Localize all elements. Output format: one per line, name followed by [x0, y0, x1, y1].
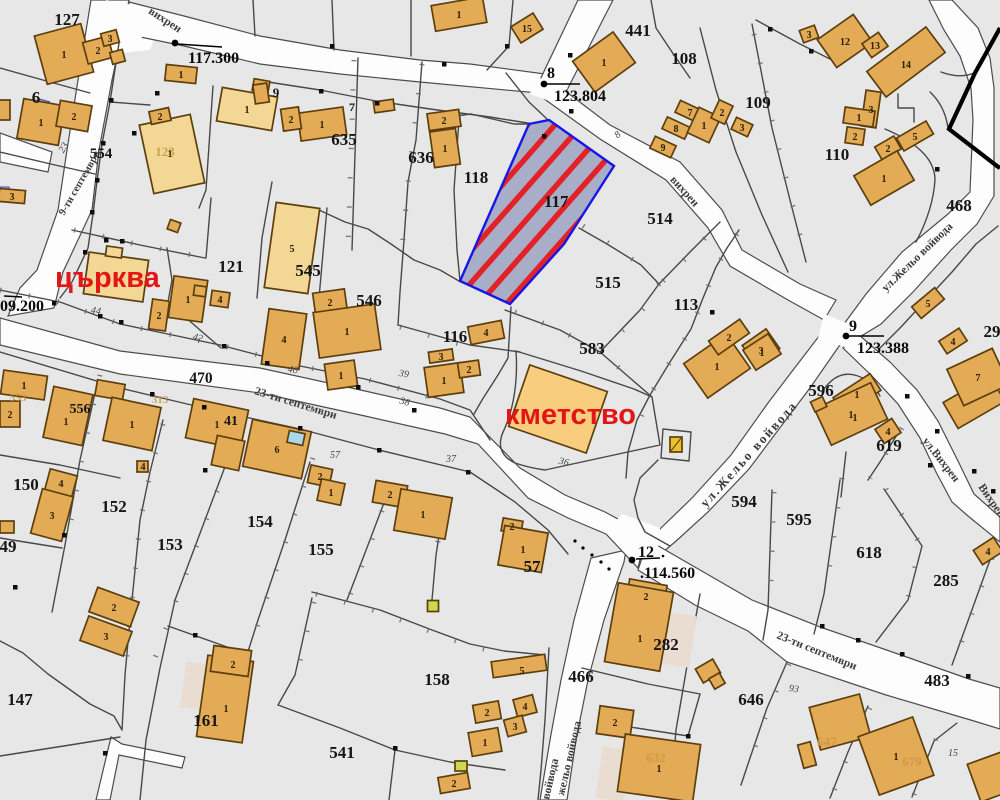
svg-text:5: 5	[926, 299, 931, 310]
svg-text:553: 553	[10, 392, 27, 404]
svg-text:1: 1	[22, 381, 27, 392]
svg-text:1: 1	[421, 510, 426, 521]
svg-text:636: 636	[408, 148, 434, 167]
svg-text:2: 2	[72, 112, 77, 123]
svg-text:1: 1	[894, 752, 899, 763]
svg-text:кметство: кметство	[505, 399, 636, 431]
svg-text:4: 4	[484, 328, 489, 339]
svg-text:154: 154	[247, 512, 273, 531]
svg-text:2: 2	[442, 116, 447, 127]
svg-text:1: 1	[715, 362, 720, 373]
svg-text:6: 6	[275, 445, 280, 456]
svg-text:595: 595	[786, 510, 812, 529]
svg-text:9: 9	[849, 318, 857, 335]
svg-text:1: 1	[443, 144, 448, 155]
svg-text:2: 2	[613, 718, 618, 729]
svg-text:1: 1	[179, 70, 184, 81]
svg-text:2: 2	[452, 779, 457, 790]
svg-text:3: 3	[513, 722, 518, 733]
svg-text:1: 1	[849, 410, 854, 421]
svg-text:441: 441	[625, 21, 651, 40]
svg-text:583: 583	[579, 339, 605, 358]
svg-text:1: 1	[882, 174, 887, 185]
svg-text:152: 152	[101, 497, 127, 516]
svg-text:5: 5	[520, 666, 525, 677]
svg-text:2: 2	[112, 603, 117, 614]
svg-text:9: 9	[273, 85, 280, 100]
svg-text:1: 1	[638, 634, 643, 645]
svg-text:3: 3	[439, 352, 444, 363]
svg-text:3: 3	[740, 123, 745, 134]
svg-text:57: 57	[524, 557, 542, 576]
svg-text:36: 36	[557, 456, 570, 469]
svg-text:93: 93	[788, 683, 800, 696]
svg-text:546: 546	[356, 291, 382, 310]
svg-text:4: 4	[218, 295, 223, 306]
svg-text:4: 4	[282, 335, 287, 346]
svg-text:123.804: 123.804	[554, 88, 606, 105]
svg-text:5: 5	[913, 132, 918, 143]
svg-text:7: 7	[349, 100, 355, 114]
svg-text:1: 1	[64, 417, 69, 428]
svg-text:1: 1	[442, 376, 447, 387]
svg-text:1: 1	[62, 50, 67, 61]
svg-text:121: 121	[218, 257, 244, 276]
svg-text:1: 1	[483, 738, 488, 749]
svg-text:3: 3	[869, 105, 874, 116]
svg-text:4: 4	[886, 427, 891, 438]
svg-text:468: 468	[946, 196, 972, 215]
svg-text:7: 7	[976, 373, 981, 384]
svg-text:8: 8	[547, 65, 555, 82]
svg-text:4: 4	[951, 337, 956, 348]
svg-text:483: 483	[924, 671, 950, 690]
svg-text:109: 109	[745, 93, 771, 112]
svg-text:3: 3	[807, 30, 812, 41]
svg-text:646: 646	[738, 690, 764, 709]
svg-text:2: 2	[886, 144, 891, 155]
svg-text:647: 647	[817, 734, 837, 749]
svg-text:9: 9	[661, 143, 666, 154]
svg-text:40: 40	[287, 364, 299, 377]
svg-text:1: 1	[339, 371, 344, 382]
svg-text:2: 2	[720, 108, 725, 119]
svg-text:150: 150	[13, 475, 39, 494]
svg-text:117.300: 117.300	[188, 50, 239, 67]
svg-text:2: 2	[485, 708, 490, 719]
svg-text:541: 541	[329, 743, 355, 762]
svg-text:123.388: 123.388	[857, 340, 909, 357]
svg-text:41: 41	[224, 414, 238, 429]
svg-text:49: 49	[0, 537, 17, 556]
svg-text:108: 108	[671, 49, 697, 68]
svg-text:619: 619	[876, 436, 902, 455]
svg-text:4: 4	[59, 479, 64, 490]
svg-text:515: 515	[595, 273, 621, 292]
svg-text:556: 556	[70, 402, 91, 417]
svg-text:2: 2	[727, 333, 732, 344]
svg-text:1: 1	[130, 420, 135, 431]
svg-text:.114.560: .114.560	[640, 565, 695, 582]
svg-text:113: 113	[674, 295, 699, 314]
svg-text:1: 1	[224, 704, 229, 715]
svg-text:29: 29	[984, 322, 1000, 341]
svg-text:1: 1	[320, 120, 325, 131]
svg-text:37: 37	[445, 454, 457, 465]
svg-text:161: 161	[193, 711, 219, 730]
svg-text:618: 618	[856, 543, 882, 562]
svg-text:6: 6	[32, 88, 41, 107]
svg-text:155: 155	[308, 540, 334, 559]
svg-text:2: 2	[467, 365, 472, 376]
svg-text:110: 110	[825, 145, 850, 164]
svg-text:3: 3	[104, 632, 109, 643]
svg-text:147: 147	[7, 690, 33, 709]
svg-text:2: 2	[96, 46, 101, 57]
svg-text:632: 632	[646, 750, 666, 765]
svg-text:2: 2	[328, 298, 333, 309]
svg-text:1: 1	[602, 58, 607, 69]
svg-text:09.200: 09.200	[0, 298, 44, 315]
svg-text:2: 2	[510, 522, 515, 533]
svg-text:635: 635	[331, 130, 357, 149]
svg-text:2: 2	[157, 311, 162, 322]
svg-text:158: 158	[424, 670, 450, 689]
svg-text:2: 2	[853, 132, 858, 143]
svg-text:3: 3	[108, 34, 113, 45]
svg-text:14: 14	[901, 60, 911, 71]
svg-text:596: 596	[808, 381, 834, 400]
svg-text:4: 4	[986, 547, 991, 558]
svg-text:5: 5	[290, 244, 295, 255]
svg-text:2: 2	[318, 472, 323, 483]
svg-text:църква: църква	[55, 262, 161, 294]
svg-text:1: 1	[329, 488, 334, 499]
svg-text:13: 13	[870, 41, 880, 52]
svg-text:2: 2	[644, 592, 649, 603]
svg-text:8: 8	[674, 124, 679, 135]
svg-text:123: 123	[155, 144, 175, 159]
svg-text:1: 1	[215, 420, 220, 431]
svg-text:1: 1	[857, 113, 862, 124]
svg-text:4: 4	[523, 702, 528, 713]
svg-text:1: 1	[760, 348, 765, 359]
svg-text:1: 1	[702, 121, 707, 132]
svg-text:117: 117	[544, 192, 569, 211]
svg-text:1: 1	[657, 764, 662, 775]
svg-text:1: 1	[521, 545, 526, 556]
svg-text:12: 12	[840, 37, 850, 48]
svg-text:7: 7	[688, 108, 693, 119]
svg-text:15: 15	[948, 748, 958, 759]
svg-text:545: 545	[295, 261, 321, 280]
svg-text:39: 39	[397, 368, 410, 381]
svg-text:153: 153	[157, 535, 183, 554]
svg-text:466: 466	[568, 667, 594, 686]
svg-text:15: 15	[522, 24, 532, 35]
svg-text:679: 679	[902, 754, 922, 769]
svg-text:3: 3	[50, 511, 55, 522]
svg-text:116: 116	[443, 327, 468, 346]
svg-text:470: 470	[189, 370, 213, 387]
svg-text:1: 1	[457, 10, 462, 21]
svg-text:57: 57	[330, 450, 341, 461]
svg-text:1: 1	[39, 118, 44, 129]
svg-text:1: 1	[855, 390, 860, 401]
svg-text:285: 285	[933, 571, 959, 590]
svg-text:2: 2	[8, 410, 13, 421]
svg-text:1: 1	[345, 327, 350, 338]
svg-text:127: 127	[54, 10, 80, 29]
svg-text:2: 2	[158, 112, 163, 123]
svg-text:594: 594	[731, 492, 757, 511]
svg-text:2: 2	[289, 115, 294, 126]
svg-text:2: 2	[231, 660, 236, 671]
svg-text:4: 4	[141, 462, 146, 473]
svg-text:282: 282	[653, 635, 679, 654]
svg-text:2: 2	[388, 490, 393, 501]
svg-text:1: 1	[186, 295, 191, 306]
svg-text:514: 514	[647, 209, 673, 228]
svg-text:1: 1	[245, 105, 250, 116]
svg-text:118: 118	[464, 168, 489, 187]
svg-text:3: 3	[10, 192, 15, 203]
